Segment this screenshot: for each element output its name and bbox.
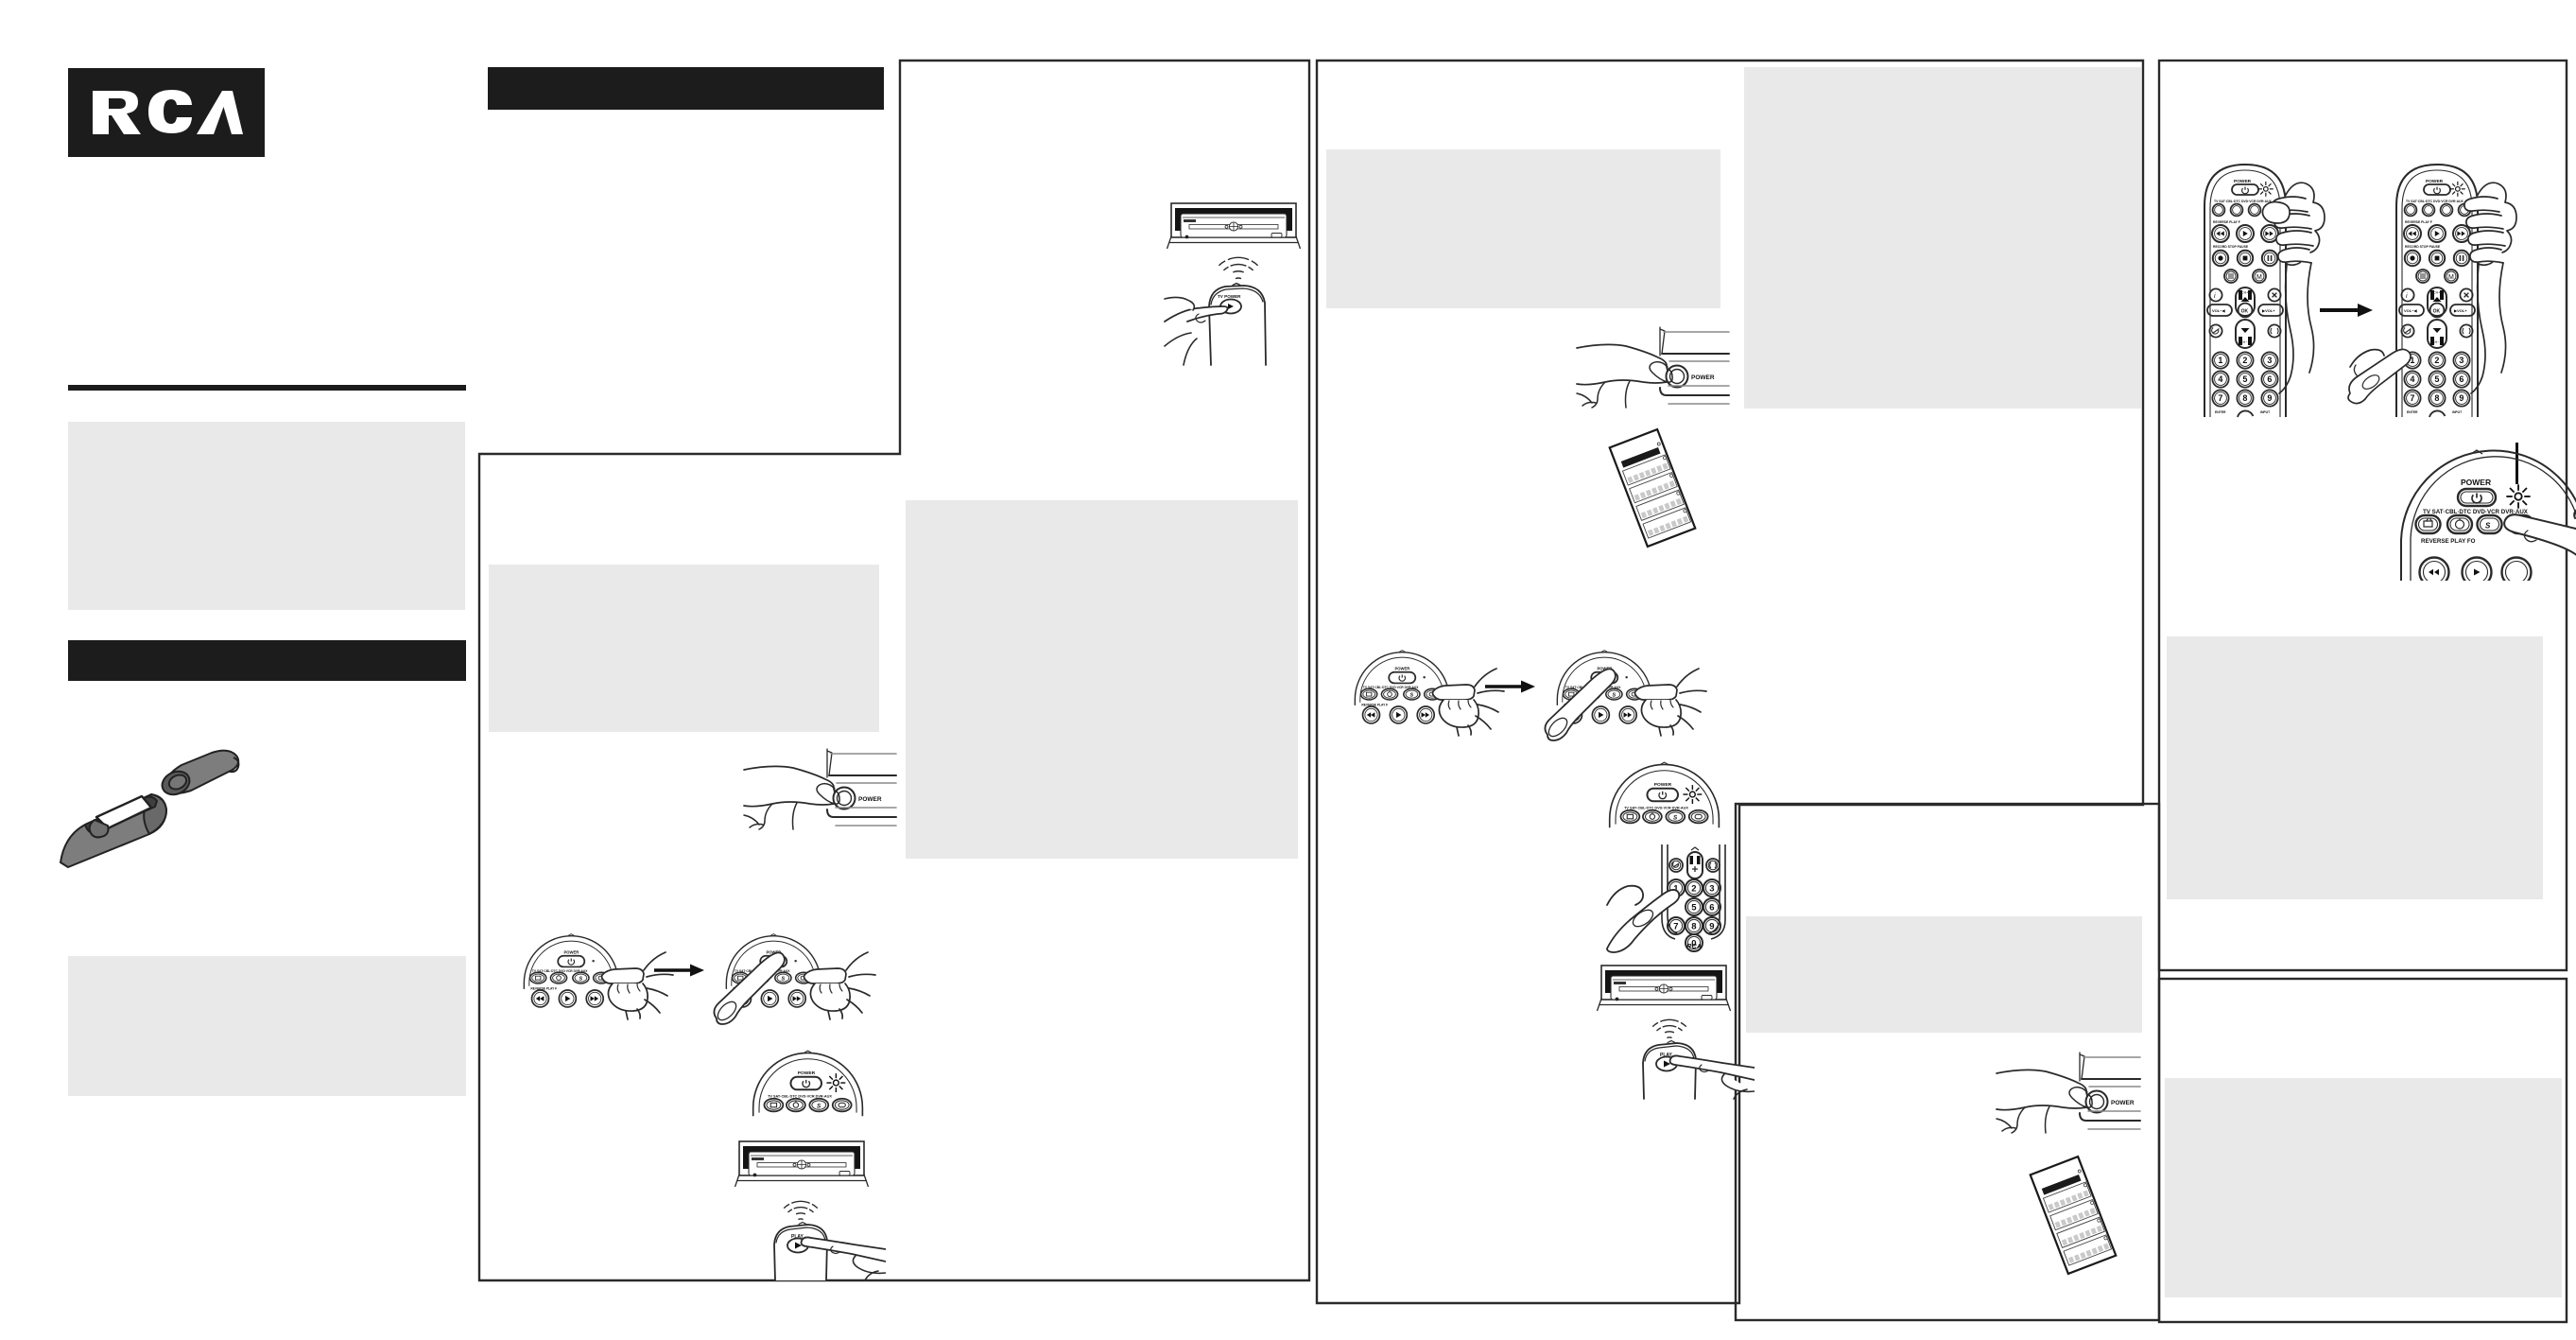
svg-text:5: 5 bbox=[2242, 374, 2247, 384]
svg-text:2: 2 bbox=[2242, 356, 2247, 365]
svg-text:VOL−◀: VOL−◀ bbox=[2404, 308, 2418, 313]
svg-text:9: 9 bbox=[2267, 393, 2272, 403]
svg-text:TV SAT·CBL·DTC DVD·VCR DVR·AUX: TV SAT·CBL·DTC DVD·VCR DVR·AUX bbox=[2214, 200, 2273, 203]
svg-text:RECORD STOP PAUSE: RECORD STOP PAUSE bbox=[2405, 245, 2441, 249]
svg-text:M: M bbox=[2448, 274, 2454, 281]
svg-text:3: 3 bbox=[1709, 883, 1714, 894]
svg-text:2: 2 bbox=[2434, 356, 2439, 365]
svg-text:OK: OK bbox=[2433, 309, 2441, 315]
svg-text:POWER: POWER bbox=[1394, 666, 1409, 670]
svg-text:CH+: CH+ bbox=[2433, 291, 2440, 295]
svg-text:ENTER: ENTER bbox=[2215, 410, 2226, 414]
svg-text:3: 3 bbox=[2459, 356, 2464, 365]
svg-text:9: 9 bbox=[1709, 921, 1714, 931]
svg-text:S: S bbox=[1673, 814, 1678, 821]
svg-text:POWER: POWER bbox=[798, 1070, 816, 1076]
svg-text:S: S bbox=[1612, 692, 1616, 698]
svg-text:i: i bbox=[2406, 293, 2408, 300]
svg-text:7: 7 bbox=[2218, 393, 2222, 403]
svg-text:POWER: POWER bbox=[1691, 374, 1715, 381]
svg-text:6: 6 bbox=[2459, 374, 2464, 384]
svg-text:1: 1 bbox=[2218, 356, 2222, 365]
svg-text:4: 4 bbox=[2410, 374, 2414, 384]
svg-text:S: S bbox=[781, 976, 785, 982]
svg-text:8: 8 bbox=[2434, 393, 2439, 403]
svg-text:ENTER: ENTER bbox=[2407, 410, 2418, 414]
svg-text:RCA: RCA bbox=[1686, 942, 1702, 950]
svg-text:POWER: POWER bbox=[1654, 782, 1672, 788]
svg-text:5: 5 bbox=[2434, 374, 2439, 384]
svg-text:INPUT: INPUT bbox=[2260, 410, 2271, 414]
svg-text:POWER: POWER bbox=[2111, 1100, 2135, 1106]
svg-text:i: i bbox=[2214, 293, 2216, 300]
svg-text:S: S bbox=[1409, 692, 1413, 698]
svg-text:CH−: CH− bbox=[2240, 340, 2247, 344]
svg-text:POWER: POWER bbox=[563, 949, 579, 954]
svg-text:M: M bbox=[2256, 274, 2262, 281]
svg-text:CH−: CH− bbox=[2432, 340, 2439, 344]
svg-text:▶VOL+: ▶VOL+ bbox=[2453, 308, 2467, 313]
svg-text:8: 8 bbox=[2242, 393, 2247, 403]
svg-text:OK: OK bbox=[2241, 309, 2249, 315]
svg-text:7: 7 bbox=[2410, 393, 2414, 403]
svg-text:6: 6 bbox=[2267, 374, 2272, 384]
svg-text:REVERSE PLAY FO: REVERSE PLAY FO bbox=[2421, 538, 2476, 545]
svg-text:TV POWER: TV POWER bbox=[1218, 294, 1241, 299]
svg-text:5: 5 bbox=[1691, 902, 1697, 913]
svg-text:REVERSE PLAY F: REVERSE PLAY F bbox=[2405, 220, 2432, 224]
svg-text:VOL−◀: VOL−◀ bbox=[2212, 308, 2226, 313]
svg-text:4: 4 bbox=[2218, 374, 2222, 384]
svg-text:CH+: CH+ bbox=[2241, 291, 2248, 295]
svg-text:POWER: POWER bbox=[2461, 478, 2491, 487]
svg-text:▶VOL+: ▶VOL+ bbox=[2261, 308, 2275, 313]
svg-text:6: 6 bbox=[1709, 902, 1714, 913]
svg-text:8: 8 bbox=[1691, 921, 1696, 931]
svg-text:7: 7 bbox=[1673, 921, 1678, 931]
svg-text:S: S bbox=[2485, 522, 2491, 531]
svg-text:TV SAT·CBL·DTC DVD·VCR DVR·AUX: TV SAT·CBL·DTC DVD·VCR DVR·AUX bbox=[1624, 806, 1688, 809]
svg-text:TV SAT·CBL·DTC DVD·VCR DVR·AUX: TV SAT·CBL·DTC DVD·VCR DVR·AUX bbox=[2406, 200, 2464, 203]
svg-text:POWER: POWER bbox=[858, 796, 882, 803]
svg-text:S: S bbox=[579, 976, 582, 982]
svg-text:TV SAT·CBL·DTC DVD·VCR DVR·AUX: TV SAT·CBL·DTC DVD·VCR DVR·AUX bbox=[768, 1094, 832, 1098]
svg-text:INPUT: INPUT bbox=[2452, 410, 2463, 414]
svg-text:3: 3 bbox=[2267, 356, 2272, 365]
svg-text:S: S bbox=[817, 1103, 821, 1109]
svg-text:2: 2 bbox=[1691, 883, 1696, 894]
svg-text:REVERSE PLAY F: REVERSE PLAY F bbox=[2213, 220, 2240, 224]
svg-text:9: 9 bbox=[2459, 393, 2464, 403]
svg-text:RECORD STOP PAUSE: RECORD STOP PAUSE bbox=[2213, 245, 2249, 249]
